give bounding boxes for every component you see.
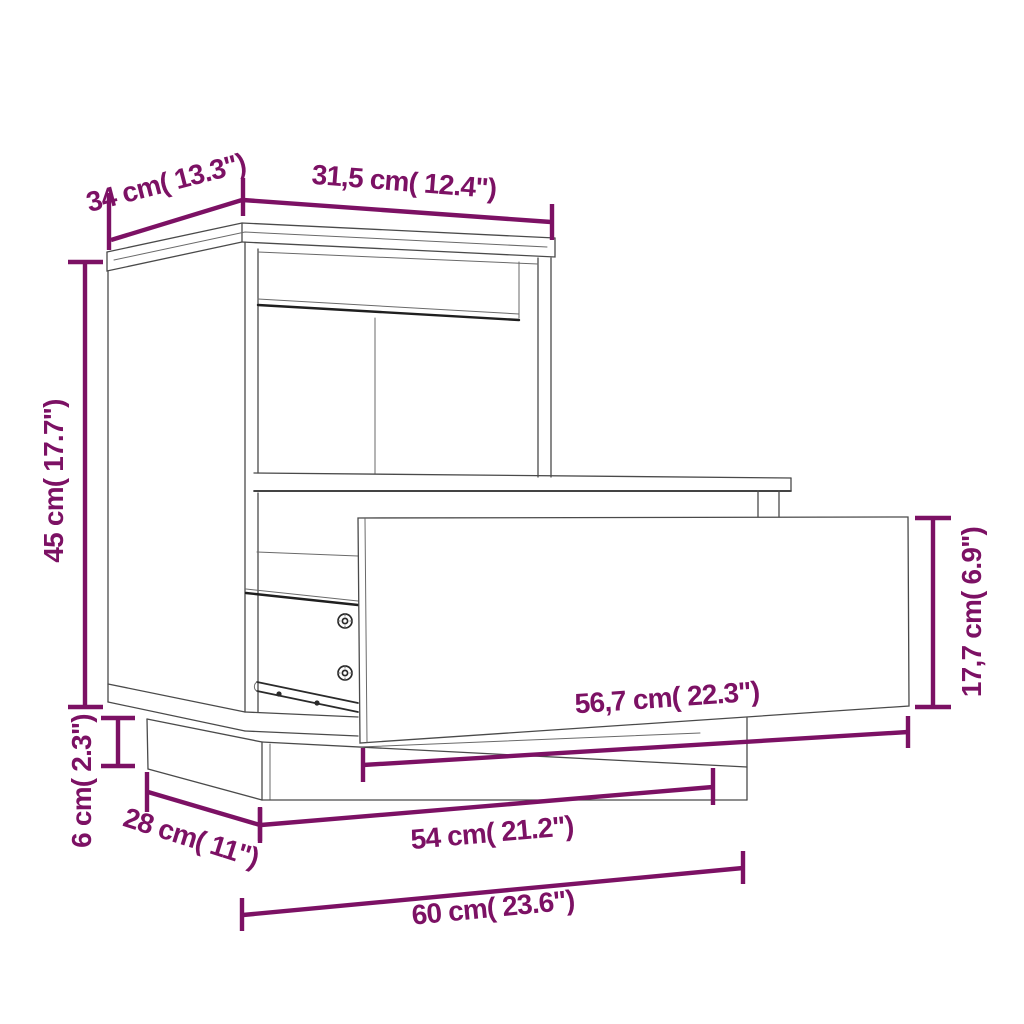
drawer-interior <box>246 552 358 712</box>
dim-line-height <box>68 262 103 707</box>
cam-lock-icon <box>338 666 353 681</box>
dim-line-drawer-height <box>915 518 951 707</box>
cabinet-tower <box>108 242 551 736</box>
cam-lock-icon <box>338 614 353 629</box>
tabletop <box>107 223 555 271</box>
dim-label-height: 45 cm( 17.7") <box>38 399 70 562</box>
dim-line-drawer-width <box>363 716 908 782</box>
base-unit <box>254 473 791 712</box>
drawer-slide-rail <box>254 682 358 712</box>
furniture-line-art <box>0 0 1024 1024</box>
dim-label-plinth-height: 6 cm( 2.3") <box>66 714 98 848</box>
dim-line-plinth-height <box>101 718 135 766</box>
dimension-diagram: 34 cm( 13.3") 31,5 cm( 12.4") 45 cm( 17.… <box>0 0 1024 1024</box>
dim-label-drawer-height: 17,7 cm( 6.9") <box>956 527 988 697</box>
